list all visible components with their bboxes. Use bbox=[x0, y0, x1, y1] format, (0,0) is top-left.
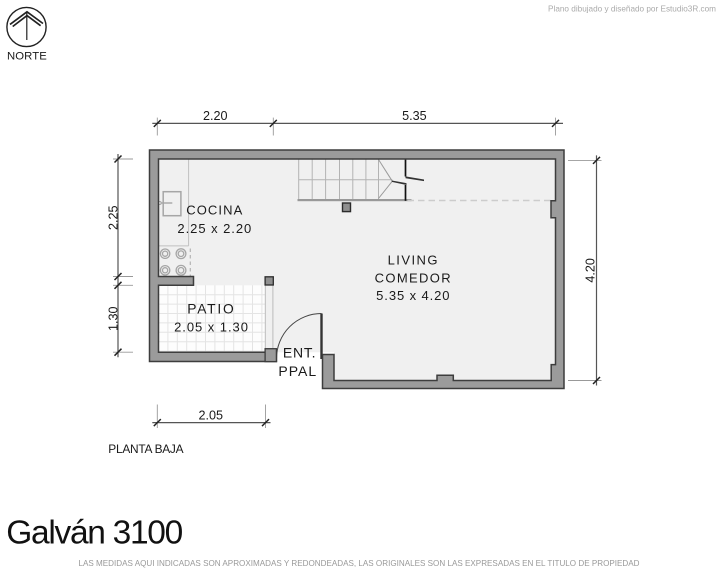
svg-text:COCINA: COCINA bbox=[186, 202, 243, 217]
svg-text:PATIO: PATIO bbox=[187, 301, 235, 316]
svg-text:LAS MEDIDAS AQUI INDICADAS SON: LAS MEDIDAS AQUI INDICADAS SON APROXIMAD… bbox=[78, 559, 639, 568]
svg-text:Galván 3100: Galván 3100 bbox=[6, 515, 182, 552]
svg-text:LIVING: LIVING bbox=[388, 252, 439, 267]
svg-text:2.25: 2.25 bbox=[106, 205, 120, 230]
svg-text:2.05: 2.05 bbox=[199, 408, 224, 422]
svg-text:PLANTA BAJA: PLANTA BAJA bbox=[108, 442, 183, 456]
svg-text:COMEDOR: COMEDOR bbox=[375, 270, 452, 285]
svg-text:PPAL: PPAL bbox=[278, 363, 317, 379]
svg-text:4.20: 4.20 bbox=[584, 258, 598, 283]
svg-text:5.35: 5.35 bbox=[402, 109, 427, 123]
svg-text:NORTE: NORTE bbox=[7, 51, 47, 63]
svg-text:2.05 x 1.30: 2.05 x 1.30 bbox=[174, 320, 249, 335]
svg-text:Plano dibujado y diseñado por: Plano dibujado y diseñado por Estudio3R.… bbox=[548, 5, 716, 14]
svg-text:5.35 x 4.20: 5.35 x 4.20 bbox=[376, 288, 450, 303]
svg-text:1.30: 1.30 bbox=[106, 306, 120, 331]
svg-text:2.25 x 2.20: 2.25 x 2.20 bbox=[177, 221, 252, 236]
svg-text:ENT.: ENT. bbox=[283, 345, 317, 361]
svg-text:2.20: 2.20 bbox=[203, 109, 228, 123]
